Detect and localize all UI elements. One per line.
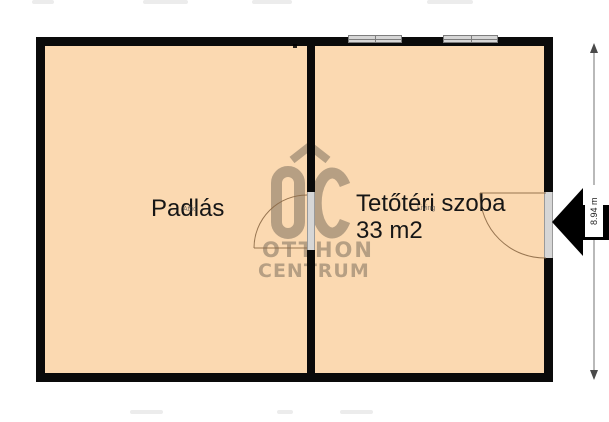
wall-middle-upper (307, 37, 315, 192)
window-1 (348, 35, 402, 43)
wall-bottom (36, 373, 553, 382)
window-divider (375, 36, 376, 42)
room-type-tag-living: Living (417, 205, 435, 212)
room-label-tetoteri-szoba: Tetőtéri szoba (356, 190, 505, 218)
wall-mark-artifact (293, 44, 297, 48)
cropped-text-artifact (340, 410, 373, 414)
dimension-arrow-up-icon (590, 43, 598, 53)
cropped-text-artifact (252, 0, 292, 4)
door-opening-middle-wall (307, 192, 315, 250)
wall-middle-lower (307, 250, 315, 382)
cropped-text-artifact (427, 0, 473, 4)
dimension-label: 8.94 m (585, 185, 603, 237)
window-divider (471, 36, 472, 42)
wall-right-upper (544, 37, 553, 192)
window-2 (443, 35, 498, 43)
cropped-text-artifact (32, 0, 54, 4)
floor-plan-canvas: ÓC OTTHON CENTRUM Padlás Attic Tetőtéri … (0, 0, 609, 422)
wall-left (36, 37, 45, 382)
room-area-label: 33 m2 (356, 217, 423, 245)
room-type-tag-attic: Attic (183, 206, 197, 213)
wall-right-lower (544, 258, 553, 382)
door-opening-right-wall (544, 192, 553, 258)
cropped-text-artifact (143, 0, 188, 4)
cropped-text-artifact (277, 410, 293, 414)
cropped-text-artifact (130, 410, 163, 414)
dimension-arrow-down-icon (590, 370, 598, 380)
